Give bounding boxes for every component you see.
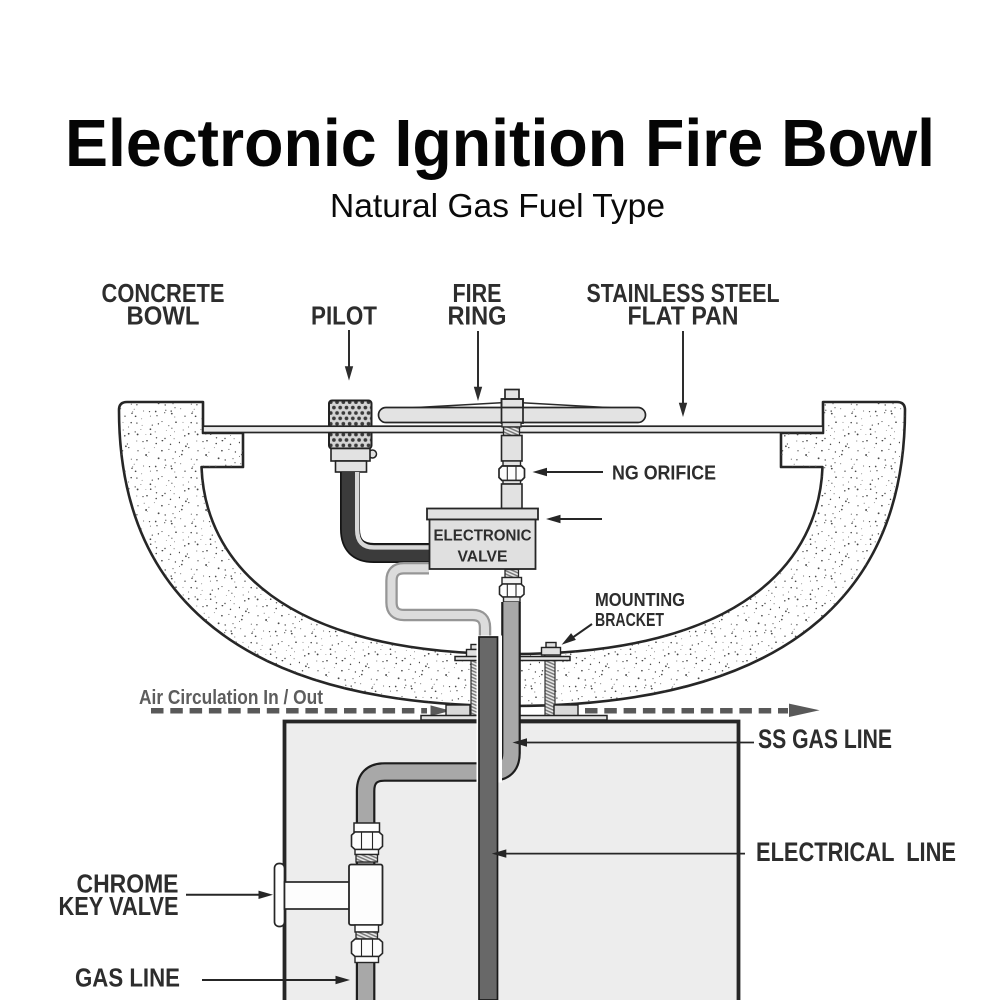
svg-text:PILOT: PILOT <box>311 301 377 331</box>
svg-text:MOUNTING: MOUNTING <box>595 590 685 610</box>
svg-text:Electronic Ignition Fire Bowl: Electronic Ignition Fire Bowl <box>65 106 935 181</box>
svg-text:Air Circulation In / Out: Air Circulation In / Out <box>139 687 323 709</box>
svg-text:NG ORIFICE: NG ORIFICE <box>612 462 716 485</box>
svg-text:BOWL: BOWL <box>127 301 200 331</box>
svg-text:ELECTRONIC: ELECTRONIC <box>434 528 532 545</box>
svg-text:SS GAS LINE: SS GAS LINE <box>758 724 892 754</box>
svg-text:Natural Gas Fuel Type: Natural Gas Fuel Type <box>330 187 665 224</box>
svg-text:KEY VALVE: KEY VALVE <box>59 891 179 921</box>
svg-text:RING: RING <box>448 301 507 331</box>
svg-text:GAS LINE: GAS LINE <box>75 963 180 993</box>
svg-text:FLAT PAN: FLAT PAN <box>628 301 739 331</box>
svg-text:ELECTRICAL LINE: ELECTRICAL LINE <box>756 837 956 867</box>
svg-text:VALVE: VALVE <box>458 549 508 566</box>
svg-text:BRACKET: BRACKET <box>595 610 664 630</box>
